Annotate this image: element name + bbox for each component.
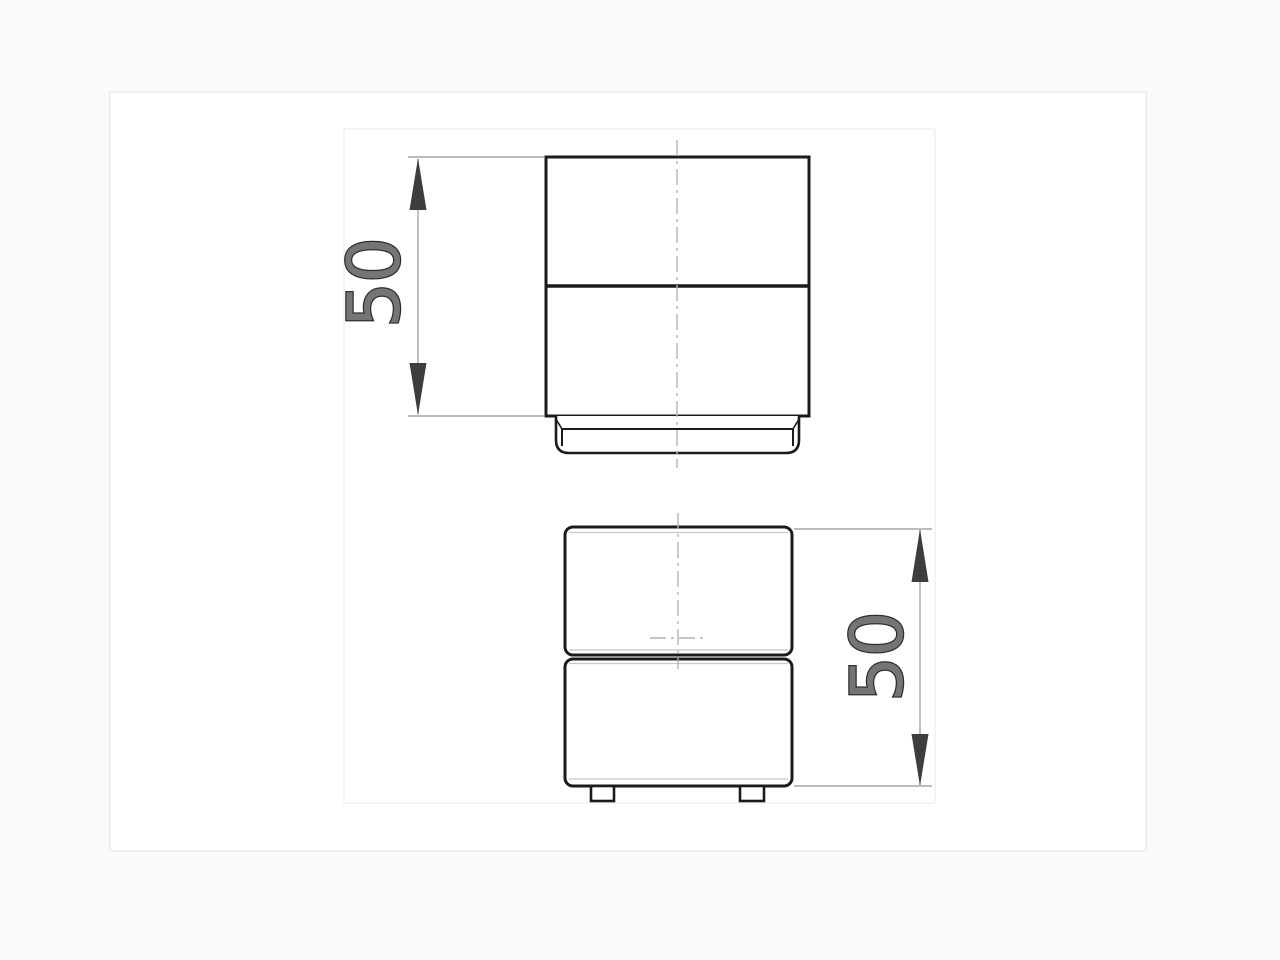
dimension-label: 50 (835, 612, 919, 702)
side-view (546, 140, 809, 468)
front-view-lower-body (565, 659, 792, 786)
front-view-foot-right (740, 786, 764, 801)
dimension-label: 50 (332, 238, 416, 328)
front-view-foot-left (591, 786, 614, 801)
drawing-canvas: 50 50 (0, 0, 1280, 960)
